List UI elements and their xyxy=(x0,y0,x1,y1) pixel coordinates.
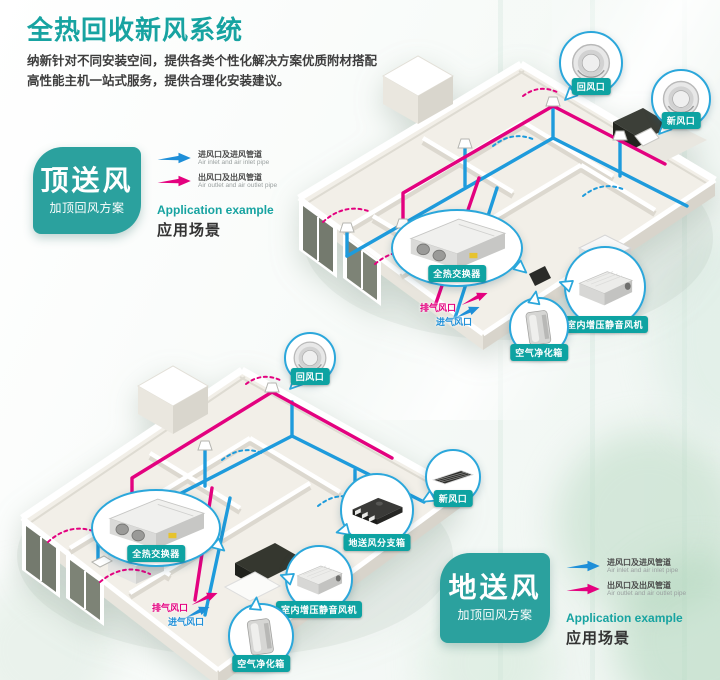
inlet-label: 进风口及进风管道 xyxy=(607,558,678,567)
booster-fan-icon xyxy=(572,264,638,310)
inlet-sublabel: Air inlet and air inlet pipe xyxy=(607,567,678,575)
badge-title: 顶送风 xyxy=(40,166,133,196)
callout-return-vent-top: 回风口 xyxy=(559,31,623,95)
legend-inlet-row: 进风口及进风管道 Air inlet and air inlet pipe xyxy=(566,558,701,575)
application-example-cn: 应用场景 xyxy=(566,627,701,648)
return-vent-tag: 回风口 xyxy=(291,368,330,385)
scheme-badge-floor-supply: 地送风 加顶回风方案 xyxy=(440,553,550,643)
callout-air-purifier-bottom: 空气净化箱 xyxy=(228,603,294,669)
exhaust-vent-label: 排气风口 xyxy=(420,301,456,314)
callout-branch-box-bottom: 地送风分支箱 xyxy=(340,473,414,547)
fresh-vent-tag: 新风口 xyxy=(434,490,473,507)
booster-fan-icon xyxy=(291,559,347,599)
subtitle-line-1: 纳新针对不同安装空间，提供各类个性化解决方案优质附材搭配 xyxy=(27,51,377,71)
inlet-label: 进风口及进风管道 xyxy=(198,150,269,159)
application-example-en: Application example xyxy=(157,203,292,217)
branch-box-tag: 地送风分支箱 xyxy=(343,534,410,551)
inlet-arrow-icon xyxy=(157,151,193,165)
badge-subtitle: 加顶回风方案 xyxy=(49,199,124,216)
heat-exchanger-tag: 全热交换器 xyxy=(127,545,185,562)
inlet-sublabel: Air inlet and air inlet pipe xyxy=(198,159,269,167)
booster-fan-tag: 室内增压静音风机 xyxy=(276,601,362,618)
application-example-cn: 应用场景 xyxy=(157,219,292,240)
booster-fan-tag: 室内增压静音风机 xyxy=(562,316,648,333)
outlet-label: 出风口及出风管道 xyxy=(198,173,277,182)
intake-vent-label: 进气风口 xyxy=(436,315,472,328)
callout-return-vent-bottom: 回风口 xyxy=(284,332,336,384)
callout-air-purifier-top: 空气净化箱 xyxy=(509,297,569,357)
subtitle-line-2: 高性能主机一站式服务，提供合理化安装建议。 xyxy=(27,71,377,91)
legend-outlet-row: 出风口及出风管道 Air outlet and air outlet pipe xyxy=(566,581,701,598)
air-purifier-tag: 空气净化箱 xyxy=(510,344,568,361)
callout-booster-fan-top: 室内增压静音风机 xyxy=(564,246,646,328)
intake-vent-label: 进气风口 xyxy=(168,615,204,628)
outlet-label: 出风口及出风管道 xyxy=(607,581,686,590)
duct-vent-labels-bottom: 排气风口 进气风口 xyxy=(146,592,236,634)
legend-bottom: 进风口及进风管道 Air inlet and air inlet pipe 出风… xyxy=(566,558,701,648)
callout-booster-fan-bottom: 室内增压静音风机 xyxy=(285,545,353,613)
outlet-sublabel: Air outlet and air outlet pipe xyxy=(607,590,686,598)
callout-fresh-vent-top: 新风口 xyxy=(651,69,711,129)
callout-tail xyxy=(247,594,264,611)
page-title: 全热回收新风系统 xyxy=(27,10,377,47)
outlet-arrow-icon xyxy=(566,582,602,596)
callout-fresh-vent-bottom: 新风口 xyxy=(425,449,481,505)
badge-subtitle: 加顶回风方案 xyxy=(457,606,532,623)
return-vent-tag: 回风口 xyxy=(572,78,611,95)
application-example-en: Application example xyxy=(566,611,701,625)
outlet-sublabel: Air outlet and air outlet pipe xyxy=(198,182,277,190)
heat-exchanger-tag: 全热交换器 xyxy=(428,265,486,282)
air-purifier-tag: 空气净化箱 xyxy=(232,655,290,672)
legend-inlet-row: 进风口及进风管道 Air inlet and air inlet pipe xyxy=(157,150,292,167)
inlet-arrow-icon xyxy=(566,559,602,573)
outlet-arrow-icon xyxy=(157,174,193,188)
exhaust-vent-label: 排气风口 xyxy=(152,601,188,614)
header: 全热回收新风系统 纳新针对不同安装空间，提供各类个性化解决方案优质附材搭配 高性… xyxy=(27,10,377,91)
legend-top: 进风口及进风管道 Air inlet and air inlet pipe 出风… xyxy=(157,150,292,240)
callout-heat-exchanger-top: 全热交换器 xyxy=(391,209,523,287)
legend-outlet-row: 出风口及出风管道 Air outlet and air outlet pipe xyxy=(157,173,292,190)
linear-grille-icon xyxy=(431,466,475,488)
poster-canvas: 全热回收新风系统 纳新针对不同安装空间，提供各类个性化解决方案优质附材搭配 高性… xyxy=(0,0,720,680)
callout-heat-exchanger-bottom: 全热交换器 xyxy=(91,489,221,567)
fresh-vent-tag: 新风口 xyxy=(662,112,701,129)
air-purifier-icon xyxy=(240,611,282,661)
callout-tail xyxy=(526,288,545,307)
branch-box-icon xyxy=(348,493,406,527)
badge-title: 地送风 xyxy=(448,573,541,603)
scheme-badge-top-supply: 顶送风 加顶回风方案 xyxy=(33,147,141,234)
duct-vent-labels-top: 排气风口 进气风口 xyxy=(420,292,510,334)
